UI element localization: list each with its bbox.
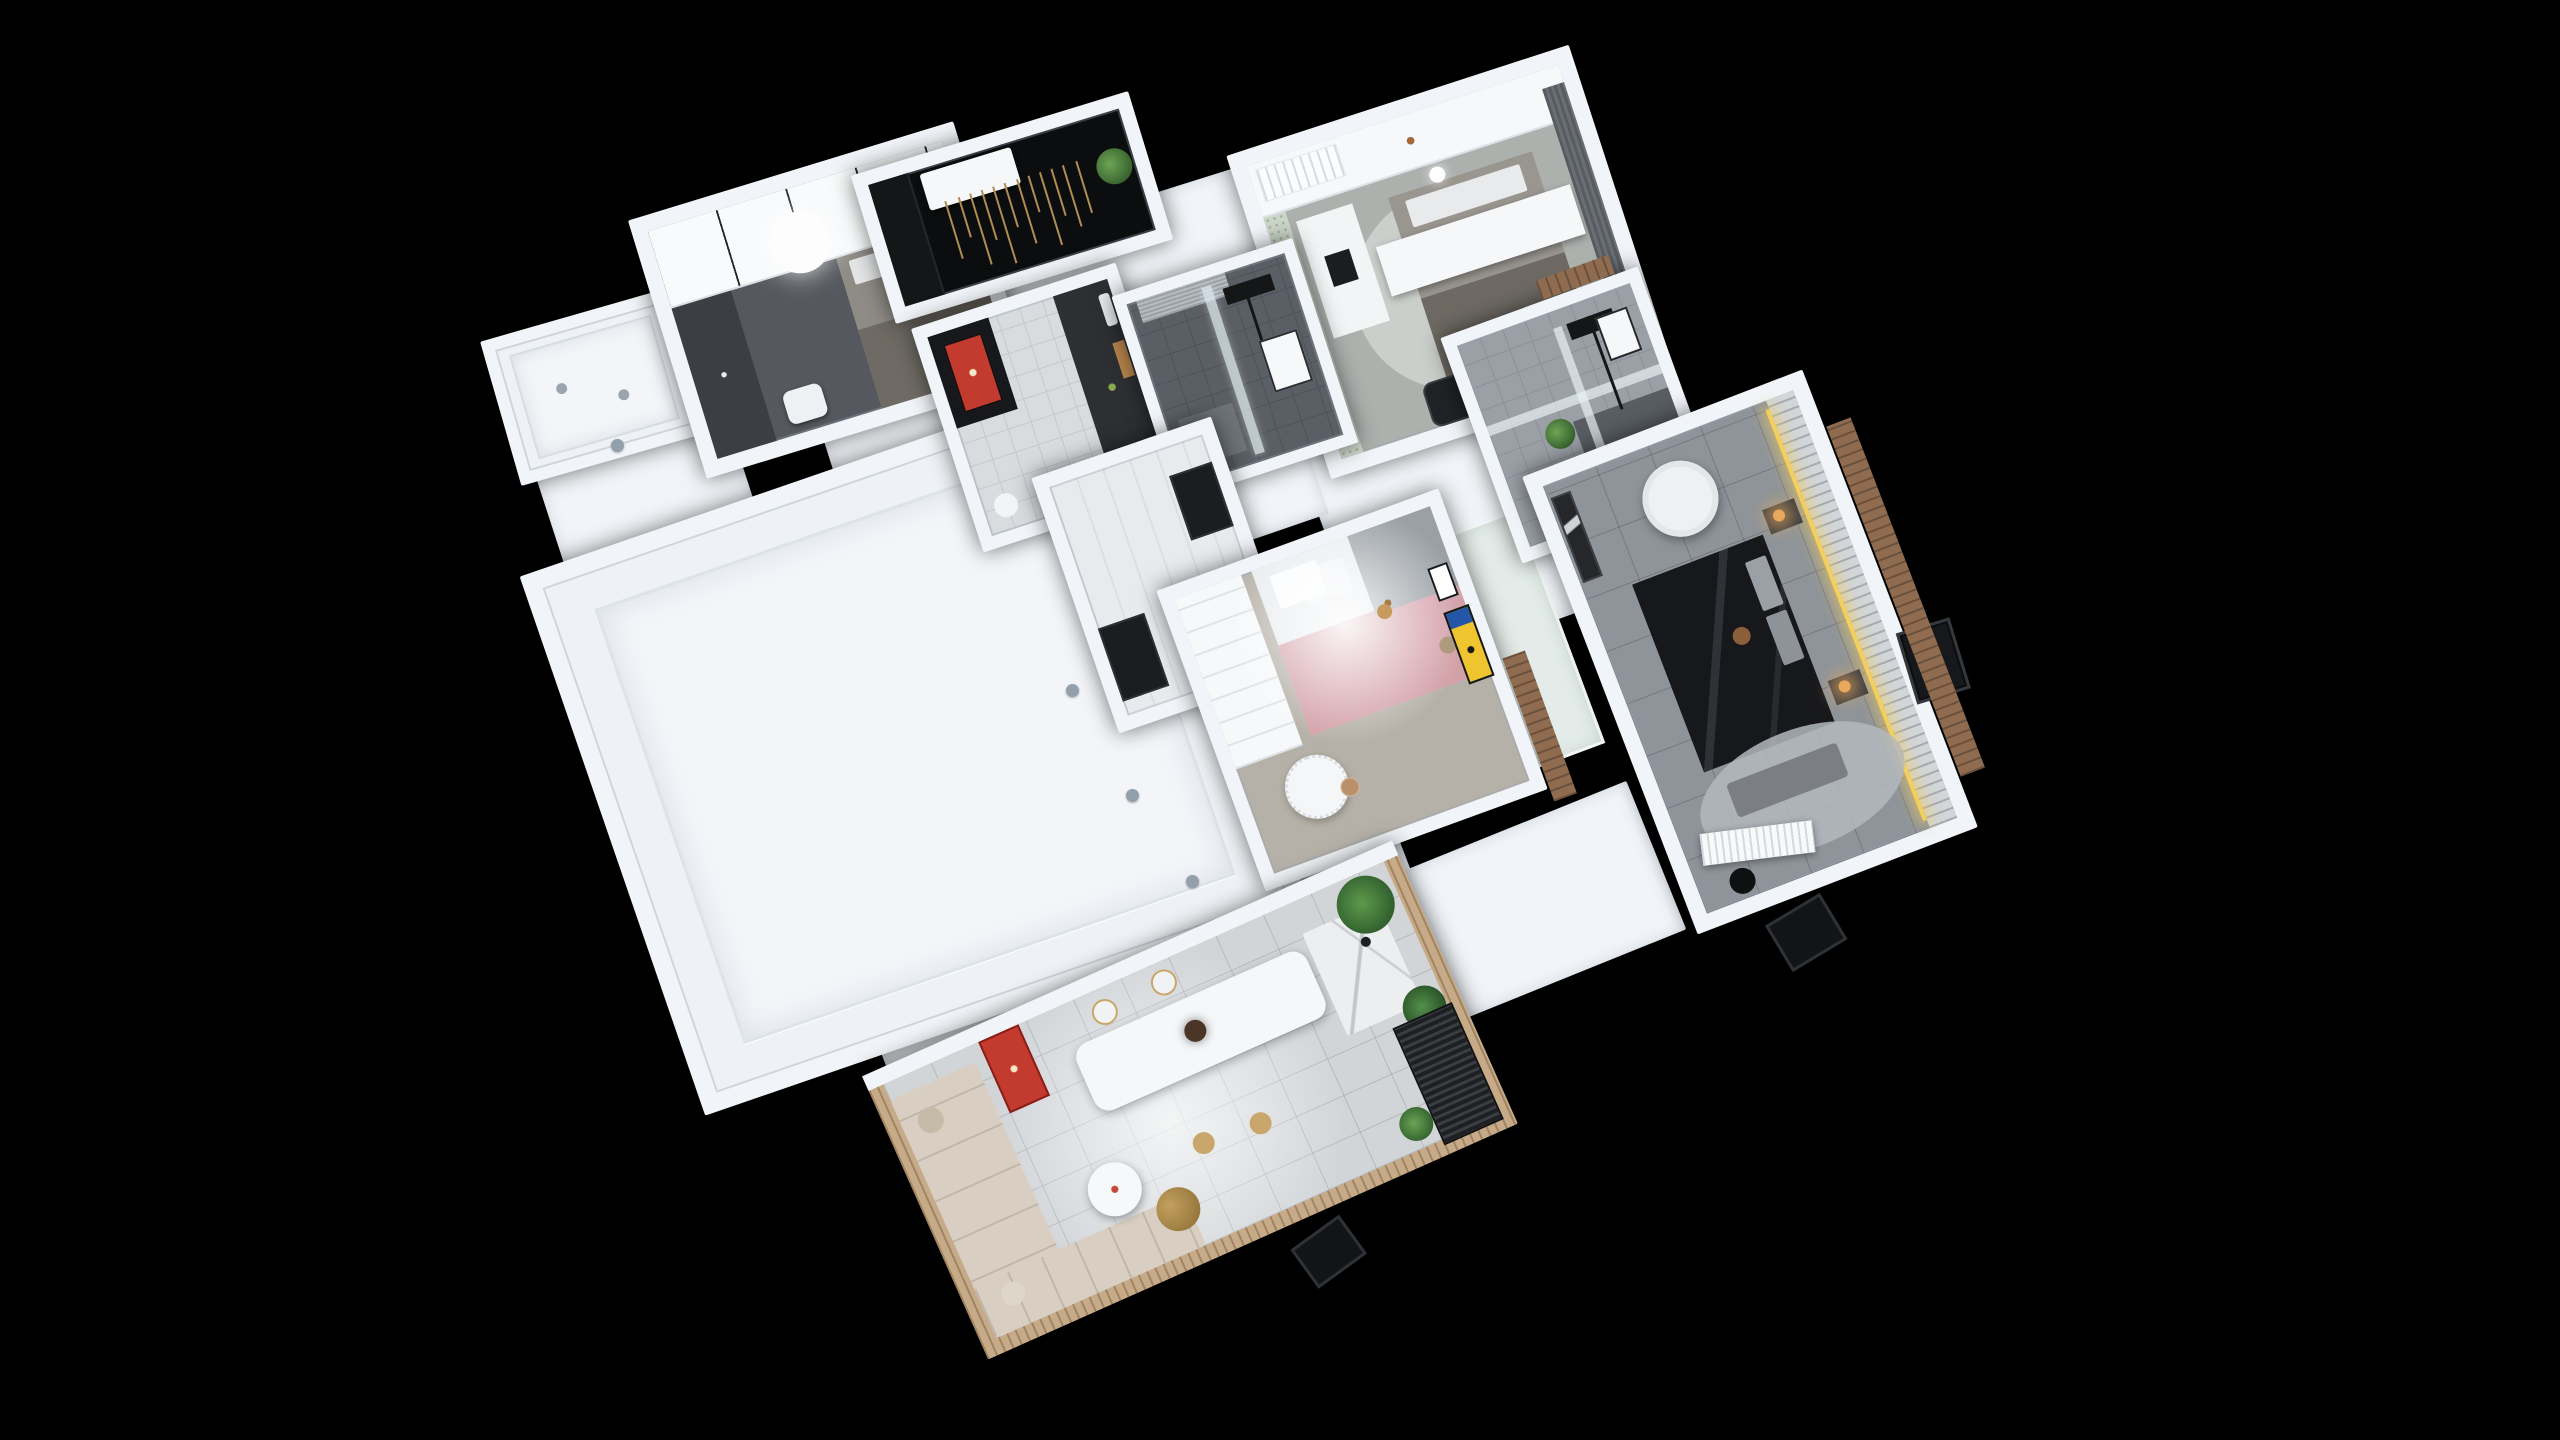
facade-window-living xyxy=(1290,1215,1367,1289)
red-poster xyxy=(942,333,1003,413)
brass-rod xyxy=(1039,172,1063,245)
black-door-kids xyxy=(1098,613,1169,702)
wall-art xyxy=(1550,490,1603,583)
brass-rod xyxy=(969,193,992,264)
bin xyxy=(991,490,1021,520)
nightstand-lamp xyxy=(1828,669,1869,705)
black-pouf xyxy=(1726,864,1760,898)
wall-cap-dot xyxy=(1066,684,1079,697)
nightstand-lamp xyxy=(1762,498,1803,534)
wall-cap-dot xyxy=(1186,875,1199,888)
brass-rod xyxy=(958,197,972,238)
black-door xyxy=(927,317,1018,428)
brass-rod xyxy=(1004,183,1019,228)
brass-rod xyxy=(1027,176,1040,213)
facade-window-south xyxy=(1765,893,1848,972)
stool xyxy=(781,382,829,426)
brass-rod xyxy=(992,186,1017,263)
wall-cap-dot xyxy=(1126,789,1139,802)
round-table xyxy=(1631,450,1729,548)
black-door-master xyxy=(1169,462,1234,541)
wall-cap-dot xyxy=(611,439,624,452)
balcony-floor-pan xyxy=(509,315,680,460)
plant xyxy=(1092,143,1137,188)
plant xyxy=(1540,415,1578,453)
brass-rod xyxy=(1016,179,1038,244)
brass-rod xyxy=(1075,161,1093,213)
render-stage xyxy=(0,0,2560,1440)
water-heater xyxy=(1259,329,1314,393)
